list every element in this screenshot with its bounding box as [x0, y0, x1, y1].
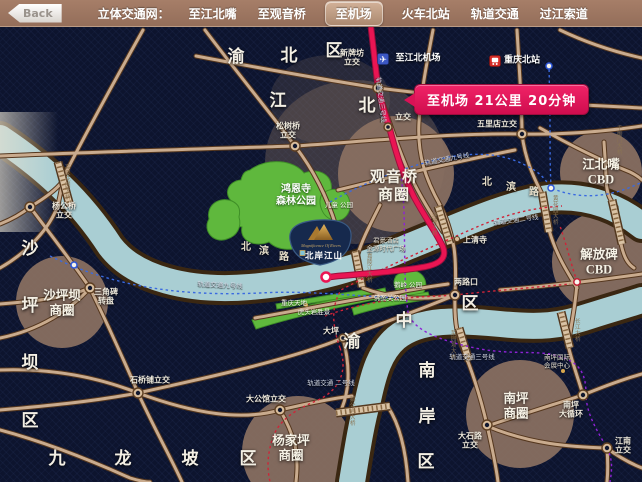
logo-cn: 北岸江山 — [305, 251, 343, 262]
metro-line6-north — [549, 64, 551, 186]
tab-4[interactable]: 轨道交通 — [469, 2, 521, 25]
top-navigation-bar: Back 立体交通网： 至江北嘴至观音桥至机场火车北站轨道交通过江索道 — [0, 0, 642, 27]
station-dot-blue-2 — [548, 185, 554, 191]
app-window: ✈ Magnificence Of Rivers 北岸江山 — [0, 0, 642, 482]
station-dot-jiefangbei — [574, 279, 580, 285]
poi-dot-tiandi — [304, 303, 308, 307]
tab-3[interactable]: 火车北站 — [400, 2, 452, 25]
station-dot-blue-3 — [546, 63, 552, 69]
tab-1[interactable]: 至观音桥 — [256, 2, 308, 25]
train-station-icon — [490, 56, 501, 67]
project-endpoint-dot — [322, 273, 331, 282]
airport-icon: ✈ — [378, 54, 389, 66]
route-info-badge: 至机场 21公里 20分钟 — [414, 84, 589, 115]
station-dot-blue-1 — [71, 262, 77, 268]
map-canvas: ✈ Magnificence Of Rivers 北岸江山 — [0, 0, 642, 482]
tab-0[interactable]: 至江北嘴 — [187, 2, 239, 25]
svg-text:✈: ✈ — [379, 56, 387, 66]
tab-5[interactable]: 过江索道 — [538, 2, 590, 25]
transit-map[interactable]: ✈ Magnificence Of Rivers 北岸江山 — [0, 0, 642, 482]
transit-tab-group: 立体交通网： 至江北嘴至观音桥至机场火车北站轨道交通过江索道 — [98, 1, 590, 26]
logo-en: Magnificence Of Rivers — [300, 243, 341, 248]
node-shangqingsi — [455, 237, 460, 242]
transit-net-label: 立体交通网： — [98, 5, 170, 22]
tab-2-active[interactable]: 至机场 — [325, 1, 383, 26]
poi-dot-exhibition — [561, 369, 565, 373]
hongensi-west-lobe — [207, 200, 240, 240]
poi-icons: ✈ — [378, 54, 501, 67]
back-button[interactable]: Back — [8, 4, 62, 23]
